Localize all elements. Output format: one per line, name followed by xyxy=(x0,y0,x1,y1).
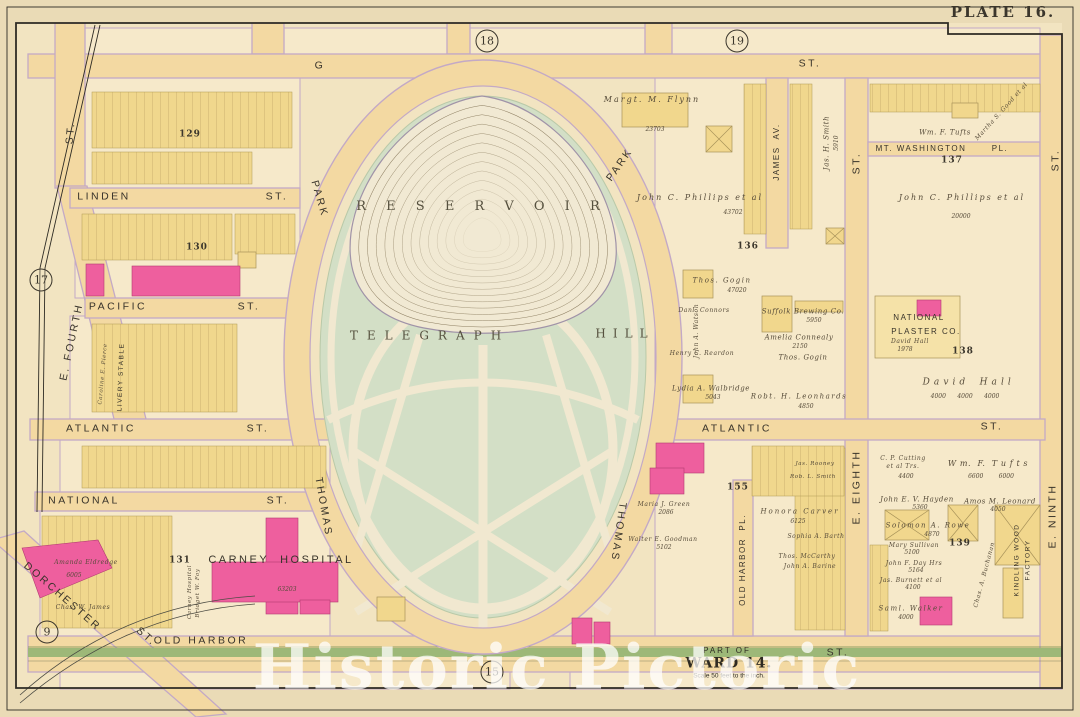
owner-hayden: John E. V. Hayden xyxy=(880,496,954,503)
owner-carney-v2: Bridget W. Foy xyxy=(196,568,202,617)
owner-phillips-e-area: 20000 xyxy=(951,214,970,220)
block-number-136: 136 xyxy=(737,242,759,251)
block-number-155: 155 xyxy=(727,483,749,492)
owner-leonhards-area: 4850 xyxy=(798,404,813,410)
national-plaster-label-2: PLASTER CO. xyxy=(891,328,960,336)
owner-leonhards: Robt. H. Leonhards xyxy=(751,393,847,400)
owner-gogin1-area: 47020 xyxy=(727,288,746,294)
owner-barine: John A. Barine xyxy=(784,564,836,570)
street-label-g: G xyxy=(315,60,326,71)
owner-barth: Sophia A. Barth xyxy=(787,534,844,540)
owner-smith-area: 5910 xyxy=(834,135,840,150)
owner-walker-area: 4000 xyxy=(898,615,913,621)
owner-smith-r: Rob. L. Smith xyxy=(790,475,836,481)
owner-cutting-2: et al Trs. xyxy=(886,464,919,470)
owner-cutting: C. P. Cutting xyxy=(880,456,926,462)
owner-carney-v1: Carney Hospital xyxy=(188,565,194,619)
owner-gogin1: Thos. Gogin xyxy=(693,277,752,284)
owner-gogin2: Thos. Gogin xyxy=(778,354,827,361)
block-number-130: 130 xyxy=(186,243,208,252)
owner-cutting-area: 4400 xyxy=(898,474,913,480)
owner-rooney: Jas. Rooney xyxy=(795,462,834,468)
watermark: Historic Pictoric xyxy=(253,634,861,699)
street-label-e-eighth-st: ST. xyxy=(851,152,862,175)
street-label-pacific-st: ST. xyxy=(238,301,261,312)
reservoir-label: R E S E R V O I R xyxy=(356,200,608,214)
owner-suffolk-area: 5950 xyxy=(806,318,821,324)
owner-tufts-s-areas: 6600 6000 xyxy=(968,474,1014,480)
street-label-atlantic-e-st: ST. xyxy=(981,421,1004,432)
owner-hall-small: David Hall xyxy=(891,339,929,345)
owner-walbridge: Lydia A. Walbridge xyxy=(672,385,750,392)
owner-green-area: 2086 xyxy=(658,510,673,516)
owner-walbridge-area: 5043 xyxy=(705,395,720,401)
owner-tufts-n: Wm. F. Tufts xyxy=(919,129,971,136)
owner-rowe: Solomon A. Rowe xyxy=(886,522,971,529)
owner-goodman: Walter E. Goodman xyxy=(628,537,697,543)
street-label-atlantic-w-st: ST. xyxy=(247,423,270,434)
owner-burnett-area: 4100 xyxy=(905,585,920,591)
owner-sullivan-area: 5100 xyxy=(904,550,919,556)
owner-smith: Jas. H. Smith xyxy=(823,116,830,170)
owner-green: Maria J. Green xyxy=(638,502,691,508)
owner-phillips-w: John C. Phillips et al xyxy=(637,194,763,202)
owner-rowe-area: 4870 xyxy=(924,532,939,538)
owner-connors: Danl. Connors xyxy=(678,308,729,314)
owner-suffolk: Suffolk Brewing Co. xyxy=(762,308,845,315)
street-label-national: NATIONAL xyxy=(48,495,120,506)
owner-leonard: Amos M. Leonard xyxy=(964,498,1036,505)
owner-hall-big-areas: 4000 4000 4000 xyxy=(931,394,1000,400)
street-label-james-av: JAMES AV. xyxy=(773,123,781,180)
owner-mccarthy: Thos. McCarthy xyxy=(779,554,836,560)
kindling-wood-label-1: KINDLING WOOD xyxy=(1015,524,1022,597)
block-circle-19: 19 xyxy=(726,30,749,53)
street-label-atlantic-w: ATLANTIC xyxy=(66,423,136,434)
owner-eldredge-area: 6005 xyxy=(66,573,81,579)
plate-title: PLATE 16. xyxy=(951,5,1056,21)
owner-phillips-w-area: 43702 xyxy=(723,210,742,216)
street-label-linden: LINDEN xyxy=(77,191,131,202)
owner-day-area: 5164 xyxy=(908,568,923,574)
owner-connealy-area: 2150 xyxy=(792,344,807,350)
owner-flynn: Margt. M. Flynn xyxy=(604,96,700,104)
carney-hospital-number: 63203 xyxy=(277,587,296,593)
owner-leonard-area: 4050 xyxy=(990,507,1005,513)
block-number-137: 137 xyxy=(941,156,963,165)
kindling-wood-label-2: FACTORY xyxy=(1026,540,1033,581)
owner-connealy: Amelia Connealy xyxy=(765,334,834,341)
block-number-139: 139 xyxy=(949,539,971,548)
street-label-e-eighth: E. EIGHTH xyxy=(851,449,862,524)
atlas-map-plate: PLATE 16. G ST. LINDEN ST. PACIFIC ST. A… xyxy=(0,0,1080,717)
street-label-e-ninth: E. NINTH xyxy=(1047,484,1058,549)
street-label-e-ninth-st: ST. xyxy=(1050,149,1061,172)
street-label-old-harbor: OLD HARBOR xyxy=(154,635,248,646)
owner-walker: Saml. Walker xyxy=(878,605,943,612)
block-circle-9: 9 xyxy=(36,621,59,644)
owner-phillips-e: John C. Phillips et al xyxy=(899,194,1025,202)
street-label-old-harbor-pl: OLD HARBOR PL. xyxy=(739,514,747,606)
owner-carver-area: 6125 xyxy=(790,519,805,525)
street-label-atlantic-e: ATLANTIC xyxy=(702,423,772,434)
owner-reardon: Henry C. Reardon xyxy=(670,351,734,357)
national-plaster-label-1: NATIONAL xyxy=(893,314,944,322)
telegraph-hill-label-2: HILL xyxy=(595,328,654,341)
block-number-138: 138 xyxy=(952,347,974,356)
owner-carver: Honora Carver xyxy=(760,508,839,515)
street-label-pacific: PACIFIC xyxy=(89,301,147,312)
street-label-mt-washington-pl: PL. xyxy=(992,145,1009,153)
owner-james-cw: Chas. W. James xyxy=(56,605,111,611)
street-label-mt-washington: MT. WASHINGTON xyxy=(876,145,967,153)
owner-hayden-area: 5360 xyxy=(912,505,927,511)
telegraph-hill-label-1: TELEGRAPH xyxy=(350,330,510,343)
block-number-129: 129 xyxy=(179,130,201,139)
street-label-national-st: ST. xyxy=(267,495,290,506)
street-label-left-st: ST. xyxy=(65,121,78,145)
owner-eldredge: Amanda Eldredge xyxy=(54,560,118,566)
owner-hall-small-area: 1978 xyxy=(897,347,912,353)
street-label-g-st: ST. xyxy=(799,58,822,69)
owner-tufts-s: W m. F. T u f t s xyxy=(948,460,1028,468)
owner-hall-big: D a v i d H a l l xyxy=(923,378,1012,387)
block-circle-17: 17 xyxy=(30,269,53,292)
street-label-linden-st: ST. xyxy=(266,191,289,202)
block-circle-18: 18 xyxy=(476,30,499,53)
owner-goodman-area: 5102 xyxy=(656,545,671,551)
carney-hospital-label: CARNEY HOSPITAL xyxy=(208,555,353,567)
owner-flynn-area: 23703 xyxy=(645,127,664,133)
